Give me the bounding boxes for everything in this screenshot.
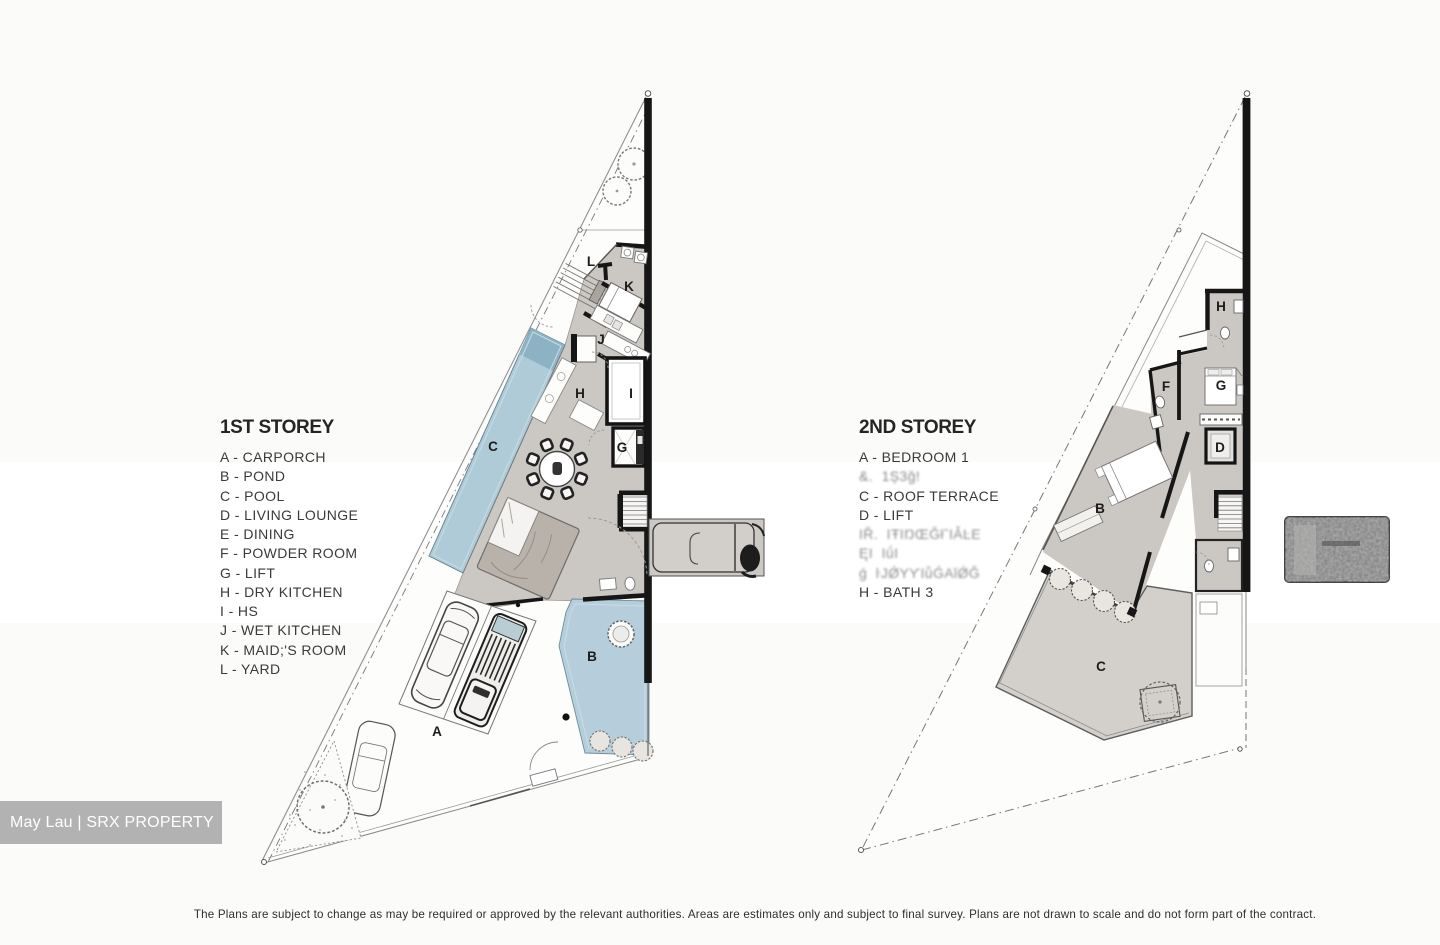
svg-text:F: F — [1162, 379, 1170, 394]
svg-text:H: H — [575, 386, 585, 401]
svg-text:A: A — [432, 724, 442, 739]
svg-text:G: G — [1216, 378, 1227, 393]
svg-text:C: C — [1096, 659, 1106, 674]
svg-text:B: B — [587, 649, 597, 664]
svg-text:D: D — [1215, 440, 1225, 455]
svg-text:J: J — [597, 332, 605, 347]
svg-text:I: I — [629, 386, 633, 401]
svg-text:H: H — [1216, 299, 1226, 314]
svg-text:L: L — [587, 254, 595, 269]
svg-text:C: C — [488, 439, 498, 454]
svg-text:K: K — [624, 279, 634, 294]
svg-text:B: B — [1095, 501, 1105, 516]
svg-text:G: G — [617, 440, 628, 455]
